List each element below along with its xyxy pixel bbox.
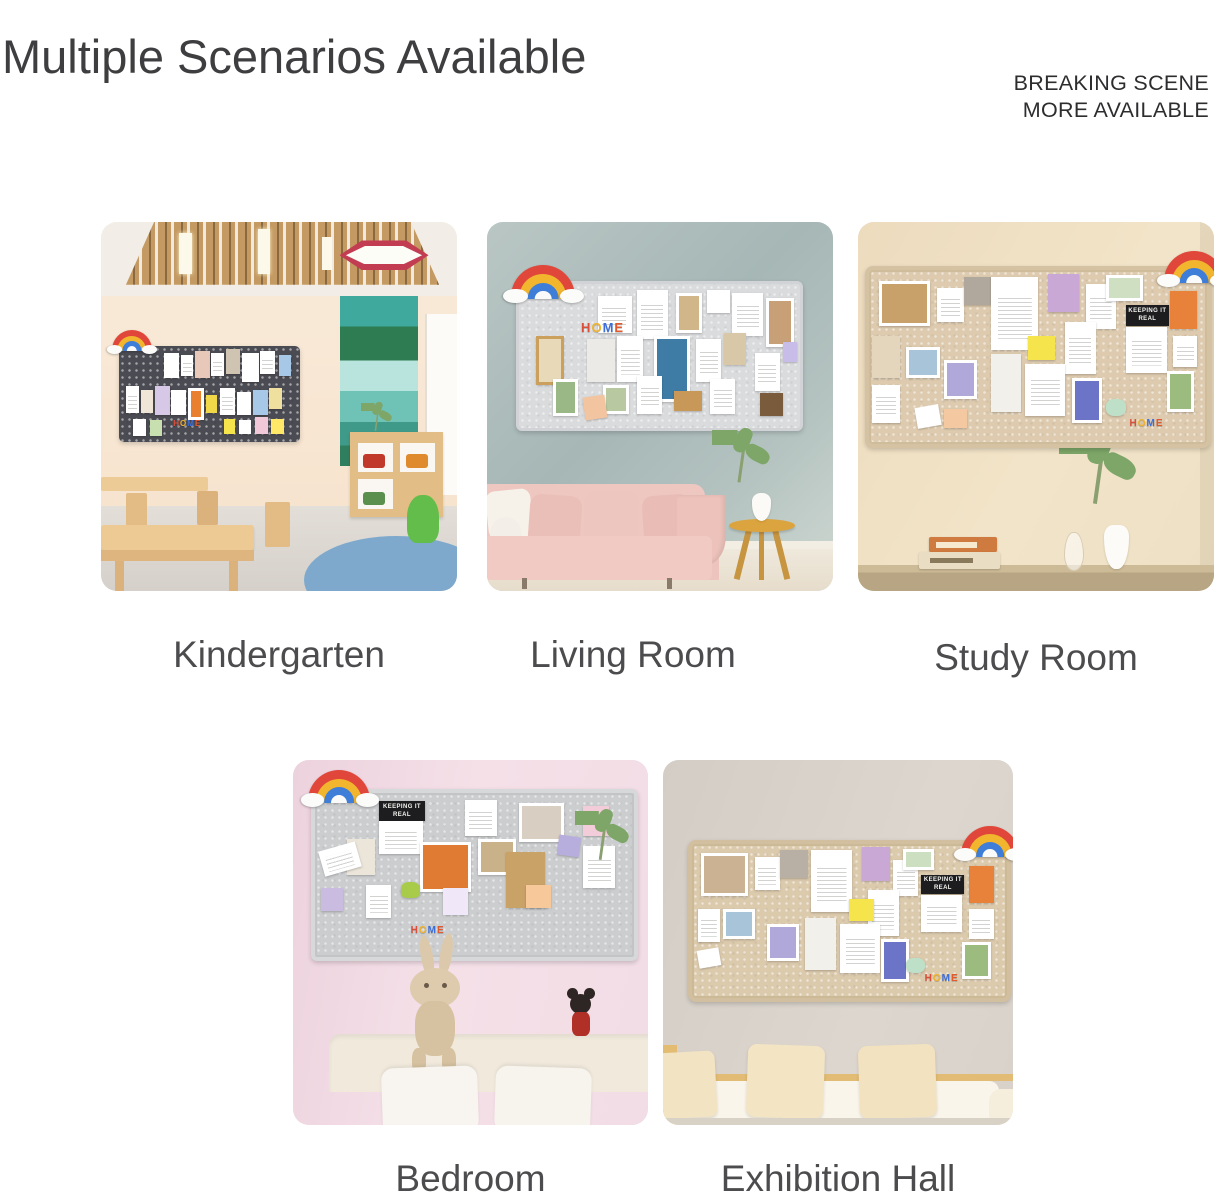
board-card (141, 390, 154, 413)
board-card (226, 349, 241, 374)
board-card (637, 290, 668, 339)
board-card (1025, 364, 1066, 416)
board-card (755, 353, 780, 390)
board-card (465, 800, 497, 836)
board-card (767, 924, 799, 961)
sofa-leg (667, 578, 673, 589)
book-stack-bottom (919, 552, 1001, 569)
board-card (805, 918, 837, 970)
board-card (698, 909, 720, 943)
book-spine-label (936, 542, 977, 548)
plush-mickey-head (570, 994, 591, 1014)
board-card (279, 355, 292, 376)
board-card (881, 939, 909, 982)
board-card (260, 351, 275, 374)
board-card (732, 293, 763, 336)
table-leg (229, 561, 238, 591)
board-card (420, 842, 471, 891)
board-card (944, 409, 968, 428)
rainbow-icon (112, 330, 152, 351)
board-card (133, 419, 146, 436)
board-card (991, 354, 1021, 413)
board-card (164, 353, 179, 378)
scene-label-kindergarten: Kindergarten (101, 634, 457, 676)
scene-photo-exhibition-hall: KEEPING IT REAL HOME (663, 760, 1013, 1125)
bed-headboard (329, 1034, 649, 1092)
ceiling-light-strip (258, 229, 270, 273)
board-card (401, 882, 420, 898)
toy-car (363, 454, 385, 468)
scene-label-bedroom: Bedroom (293, 1158, 648, 1200)
desk-surface (858, 565, 1214, 591)
table-front-face (101, 550, 254, 561)
toy-chair-green (407, 495, 439, 543)
board-card (760, 393, 782, 416)
scene-label-exhibition-hall: Exhibition Hall (663, 1158, 1013, 1200)
rabbit-eye (442, 983, 447, 988)
board-card (237, 392, 252, 415)
board-card (1170, 291, 1197, 329)
board-card (964, 277, 991, 305)
board-card (766, 298, 794, 347)
board-card (379, 821, 424, 854)
board-card (1065, 322, 1095, 374)
board-card (211, 353, 224, 376)
board-card (1106, 275, 1143, 301)
rainbow-icon (308, 770, 370, 803)
promo-line-2: MORE AVAILABLE (1014, 97, 1209, 124)
board-card (696, 947, 721, 969)
board-card (906, 347, 940, 378)
board-card (526, 885, 552, 908)
board-card (242, 353, 258, 382)
scene-label-study-room: Study Room (858, 637, 1214, 679)
board-card (969, 909, 994, 940)
scene-photo-bedroom: KEEPING IT REAL HOME (293, 760, 648, 1125)
board-card (321, 888, 343, 911)
board-card (239, 420, 252, 433)
board-card (195, 351, 210, 378)
board-card (1048, 274, 1078, 312)
sofa-pillow (663, 1050, 717, 1119)
board-card (1173, 336, 1197, 367)
board-card (269, 388, 282, 409)
board-card (811, 850, 852, 911)
board-card (872, 336, 899, 378)
side-table-leg (759, 530, 765, 580)
kids-table-front (101, 525, 254, 551)
plant-icon (575, 811, 631, 867)
scene-photo-living-room: HOME (487, 222, 833, 591)
home-letters: HOME (1130, 418, 1164, 429)
felt-board: HOME (516, 281, 802, 431)
board-card (220, 388, 235, 415)
kids-chair (197, 491, 218, 524)
board-card (780, 850, 808, 878)
kids-chair (265, 502, 290, 546)
board-card (937, 288, 964, 323)
vase (1104, 525, 1129, 569)
board-card (366, 885, 392, 918)
board-card (255, 417, 268, 434)
board-card (224, 419, 235, 434)
home-letters: HOME (925, 973, 959, 984)
rainbow-icon (961, 826, 1013, 857)
board-card (921, 895, 962, 932)
home-letters: HOME (173, 419, 201, 428)
board-card (171, 390, 186, 415)
board-card (617, 336, 642, 382)
felt-board: KEEPING IT REAL HOME (865, 266, 1211, 447)
sofa-pillow (858, 1043, 938, 1119)
board-card (879, 281, 930, 326)
board-card (519, 803, 564, 842)
scene-label-living-room: Living Room (460, 634, 806, 676)
page-title: Multiple Scenarios Available (2, 33, 586, 80)
promo-line-1: BREAKING SCENE (1014, 70, 1209, 97)
ceiling-light-strip (179, 233, 191, 274)
board-card (582, 395, 607, 421)
board-card (181, 355, 194, 376)
sofa-leg (522, 578, 528, 589)
home-letters: HOME (581, 320, 624, 335)
board-card (674, 391, 702, 411)
book-spine-text (930, 558, 973, 563)
board-card (155, 386, 170, 415)
board-card (840, 924, 881, 973)
plush-mickey-body (572, 1012, 590, 1036)
board-card (915, 404, 942, 429)
kids-chair (126, 493, 147, 526)
felt-board: HOME (119, 346, 301, 442)
plant-icon (361, 403, 393, 435)
board-card (755, 857, 780, 891)
board-card (536, 336, 564, 385)
scene-photo-study-room: KEEPING IT REAL HOME (858, 222, 1214, 591)
board-card (443, 888, 469, 914)
board-card (1167, 371, 1194, 413)
board-card (906, 958, 925, 973)
home-letters: HOME (411, 925, 445, 936)
floor (663, 1118, 1013, 1125)
kids-table-back (101, 477, 208, 492)
board-card (676, 293, 701, 333)
product-infographic: { "header": { "title": "Multiple Scenari… (0, 0, 1225, 1200)
board-card (696, 339, 721, 382)
board-card (783, 342, 797, 362)
promo-text: BREAKING SCENE MORE AVAILABLE (1014, 70, 1209, 123)
board-card (603, 385, 628, 414)
board-card (903, 849, 935, 870)
board-card (637, 376, 662, 413)
board-card (962, 942, 990, 979)
board-card (587, 339, 615, 382)
scene-photo-kindergarten: HOME (101, 222, 457, 591)
board-card (553, 379, 578, 416)
keeping-it-real-card: KEEPING IT REAL (379, 801, 426, 821)
board-card (701, 853, 748, 896)
sofa-seat (487, 536, 712, 580)
sofa-pillow (746, 1043, 826, 1119)
board-card (862, 847, 890, 881)
keeping-it-real-card: KEEPING IT REAL (1126, 305, 1169, 326)
glass-bottle (1064, 532, 1084, 571)
board-card (188, 388, 204, 421)
board-card (969, 866, 994, 903)
board-card (1126, 327, 1167, 372)
board-card (1028, 336, 1055, 360)
board-card (1106, 399, 1126, 416)
board-card (724, 333, 746, 365)
table-leg (115, 561, 124, 591)
board-card (723, 909, 755, 940)
board-card (206, 395, 217, 412)
rainbow-icon (1164, 251, 1214, 283)
board-card (944, 360, 978, 398)
felt-board: KEEPING IT REAL HOME (688, 840, 1011, 1001)
board-card (1072, 378, 1102, 423)
bed-pillow (381, 1065, 479, 1125)
keeping-it-real-card: KEEPING IT REAL (921, 875, 964, 894)
toy-car (406, 454, 428, 468)
board-card (849, 899, 874, 920)
board-card (271, 419, 284, 434)
book-stack-top (929, 537, 997, 552)
rainbow-icon (511, 265, 575, 299)
board-card (707, 290, 729, 313)
board-card (150, 420, 163, 435)
bed-pillow (494, 1065, 592, 1125)
board-card (126, 386, 139, 413)
ceiling-light-strip (322, 237, 333, 270)
board-card (872, 385, 899, 423)
board-card (253, 390, 268, 415)
plant-icon (712, 430, 772, 490)
toy-blocks (363, 492, 385, 506)
felt-board: KEEPING IT REAL HOME (311, 789, 639, 961)
board-card (710, 379, 735, 414)
